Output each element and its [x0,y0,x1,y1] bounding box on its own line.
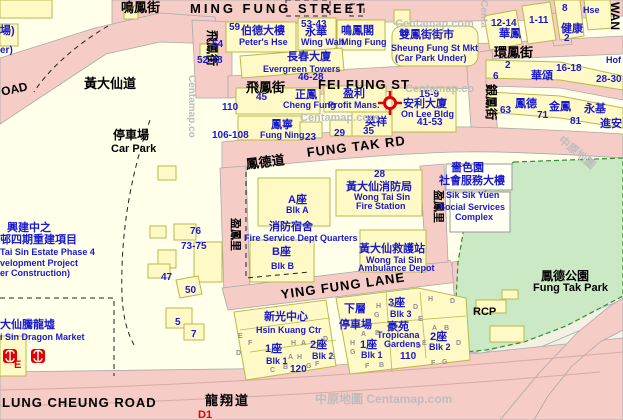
wing-letter: E [238,333,243,340]
watermark-6: 中原地圖 Centamap.com [315,393,452,405]
bldg-wah-fung-zh: 華鳳 [499,29,521,40]
bldg-ambulance-zh: 黃大仙救護站 [359,244,425,255]
bldg-hse-fragment: Hse [583,6,600,15]
street-ying-fung-lane-en: YING FUNG LANE [280,271,406,301]
wing-letter: B [444,325,449,332]
mtr-station-icon[interactable] [31,349,45,368]
watermark-7: Centa [478,0,488,28]
bldg-ming-fung-en: Ming Fung [341,38,386,47]
num-76: 76 [190,227,201,237]
wing-letter: D [450,298,455,305]
wing-letter: G [330,354,335,361]
num-47: 47 [161,273,172,283]
bldg-blk-b-zh: B座 [272,247,291,258]
street-ming-fung-en: MING FUNG STREET [190,2,367,15]
num-71: 71 [537,111,548,121]
wing-letter: H [376,303,381,310]
note-construction-en2: velopment Project [0,259,78,268]
bldg-blk-a-en: Blk A [286,206,309,215]
bldg-sik-sik-yuen-en2: Social Services [439,203,505,212]
bldg-trop-blk3-en: Blk 3 [390,310,412,319]
bldg-sik-sik-yuen-en3: Complex [455,213,493,222]
wing-letter: A [361,331,366,338]
wing-letter: A [432,325,437,332]
num-106-108: 106-108 [212,131,249,141]
num-59: 59 [229,23,240,33]
num-8: 8 [562,4,568,14]
bldg-hsin-kuang-zh: 新光中心 [264,312,308,323]
bldg-ambulance-en2: Ambulance Depot [358,264,435,273]
labels-layer: 鳴鳳街MING FUNG STREET飛鳳街黃大仙道OADFEI FUNG ST… [0,0,623,420]
num-1-11: 1-11 [529,16,548,26]
num-2-kin-hong: 2 [564,34,570,44]
street-ngan-fung-vert-zh: 銀鳳街 [485,84,497,120]
park-fung-tak-en: Fung Tak Park [533,283,608,294]
num-5: 5 [175,318,181,328]
wing-letter: A [301,340,306,347]
bldg-dragon-market-en: i Sin Dragon Market [0,333,85,342]
bldg-car-park-under-en: (Car Park Under) [395,54,467,63]
bldg-peters-house-en: Peter's Hse [239,38,288,47]
wing-letter: E [422,340,427,347]
wing-letter: G [306,363,311,370]
wing-letter: E [418,316,423,323]
bldg-fs-quarters-en: Fire Service Dept Quarters [244,234,358,243]
mtr-station-icon[interactable] [3,349,17,368]
num-41-53: 41-53 [417,118,443,128]
wing-letter: D [416,343,421,350]
note-construction-en1: Tai Sin Estate Phase 4 [0,248,95,257]
bldg-trop-blk2-en: Blk 2 [429,343,451,352]
watermark-5: 中原地圖 [556,135,597,172]
bldg-lower-carpark-zh2: 停車場 [339,320,372,331]
num-29: 29 [334,129,345,139]
bldg-fs-quarters-zh: 消防宿舍 [269,222,313,233]
num-23: 23 [305,133,316,143]
bldg-kam-fung-zh: 金鳳 [549,102,571,113]
street-fung-tak-zh: 鳳德道 [245,153,285,171]
wing-letter: B [390,302,395,309]
bldg-dragon-market-zh: 大仙騰龍墟 [0,320,55,331]
wing-letter: F [431,360,435,367]
wing-letter: B [379,362,384,369]
note-construction-en3: er Construction) [0,269,70,278]
exit-d1: D1 [198,410,212,420]
num-52-48: 52-48 [197,56,223,66]
bldg-profit-mans-en: Profit Mans. [328,101,380,110]
wing-letter: D [323,336,328,343]
num-73-75: 73-75 [181,242,207,252]
wing-letter: H [297,354,302,361]
street-wan-fung-vert-en: WAN [609,2,621,30]
wing-letter: C [270,367,275,374]
wing-letter: F [248,340,252,347]
wing-letter: H [291,340,296,347]
bldg-peters-house-zh: 伯德大樓 [241,26,285,37]
wing-letter: G [374,312,379,319]
wing-letter: F [315,361,319,368]
bldg-hof-fragment: Hof [606,56,621,65]
wing-letter: D [456,340,461,347]
bldg-lower-carpark-zh1: 下層 [344,304,366,315]
watermark-1: Centamap.com [395,19,474,30]
wing-letter: H [428,296,433,303]
bldg-fung-tak-zh: 鳳德 [515,99,537,110]
watermark-3: Centamap.com [300,113,379,124]
bldg-sik-sik-yuen-en1: Sik Sik Yuen [446,191,499,200]
bldg-sheung-fung-mkt-en: Sheung Fung St Mkt [391,44,478,53]
num-7: 7 [191,330,197,340]
street-road-fragment: OAD [0,80,29,97]
wing-letter: B [283,364,288,371]
num-63: 63 [500,106,511,116]
note-construction-zh1: 興建中之 [7,223,51,234]
label-car-park-en: Car Park [111,144,156,155]
bldg-sik-sik-yuen-zh2: 社會服務大樓 [439,176,505,187]
bldg-trop-blk1-en: Blk 1 [361,351,383,360]
num-110-fei-fung: 110 [222,103,238,113]
wing-letter: G [442,359,447,366]
street-wan-fung-zh: 環鳳街 [494,46,533,59]
bldg-sik-sik-yuen-zh1: 嗇色園 [451,163,484,174]
wing-letter: F [365,363,369,370]
street-wong-tai-sin-zh: 黃大仙道 [84,77,136,90]
bldg-wing-wah-zh: 永華 [305,27,327,38]
num-2-wah-chung: 2 [505,61,511,71]
wing-letter: H [350,340,355,347]
bldg-wing-kee-zh: 永基 [584,104,606,115]
num-50: 50 [185,286,196,296]
bldg-fragment-cheung: 場) [0,26,15,37]
bldg-chun-on-zh: 進安 [600,119,622,130]
street-ying-fung-lane-vert-zh-west: 盈鳳里 [229,218,240,251]
num-46-28: 46-28 [298,73,324,83]
num-45: 45 [256,93,267,103]
num-6: 6 [493,72,499,82]
bldg-fragment-er: er) [0,46,13,56]
street-ming-fung-zh: 鳴鳳街 [121,1,160,14]
bldg-sheung-fung-mkt-zh: 雙鳳街街市 [399,30,454,41]
num-16-18: 16-18 [556,64,582,74]
bldg-fire-station-en2: Fire Station [356,202,406,211]
wing-letter: D [413,304,418,311]
wing-letter: A [288,354,293,361]
street-lung-cheung-en: LUNG CHEUNG ROAD [2,396,157,409]
bldg-blk-b-en: Blk B [271,262,294,271]
note-construction-zh2: 邨四期重建項目 [0,235,77,246]
wing-letter: G [350,349,355,356]
num-28-fire-station: 28 [374,170,385,180]
park-fung-tak-zh: 鳳德公園 [541,270,589,282]
watermark-2: Centamap.co [186,75,196,138]
crosshair-marker-icon [377,90,403,121]
label-car-park-zh: 停車場 [113,129,149,141]
label-rcp: RCP [473,307,496,318]
street-lung-cheung-zh: 龍翔道 [205,394,250,407]
bldg-evergreen-zh: 長春大廈 [287,52,331,63]
wing-letter: B [375,330,380,337]
bldg-wah-chung-zh: 華頌 [531,71,553,82]
num-35: 35 [363,127,374,137]
bldg-profit-mans-zh: 盈利 [343,89,365,100]
wing-letter: D [236,350,241,357]
num-54: 54 [212,40,223,50]
bldg-wing-wah-en: Wing Wah [301,38,344,47]
map-canvas[interactable]: 鳴鳳街MING FUNG STREET飛鳳街黃大仙道OADFEI FUNG ST… [0,0,623,420]
bldg-ming-fung-court-zh: 鳴鳳閣 [341,26,374,37]
bldg-hsin-kuang-en: Hsin Kuang Ctr [256,326,322,335]
num-120: 120 [290,365,307,375]
bldg-hk-blk1-zh: 1座 [265,344,282,355]
num-28-30: 28-30 [596,75,622,85]
num-110-tropicana: 110 [400,352,416,362]
watermark-4: Centamap.co [405,84,474,95]
num-81: 81 [570,117,581,127]
bldg-fung-ning-en: Fung Ning [260,131,305,140]
street-fung-tak-en: FUNG TAK RD [306,134,406,159]
